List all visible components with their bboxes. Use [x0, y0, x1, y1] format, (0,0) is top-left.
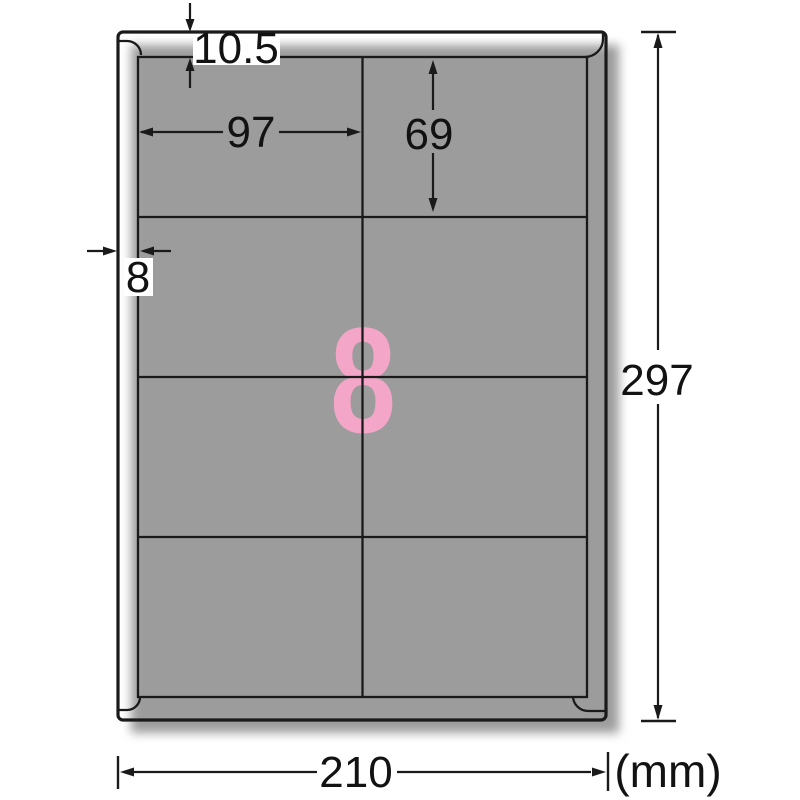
sheet-height-value: 297: [620, 356, 693, 405]
sheet-width-value: 210: [319, 748, 392, 797]
label-width-value: 97: [227, 108, 276, 157]
top-margin-value: 10.5: [193, 24, 279, 73]
dimension-sheet-width: 210: [118, 748, 608, 797]
arrowhead-right-icon: [103, 247, 117, 256]
label-height-value: 69: [405, 110, 454, 159]
label-sheet-dimension-diagram: 8 10.5 97 69: [0, 0, 800, 800]
arrowhead-left-icon: [120, 768, 134, 777]
side-margin-value: 8: [126, 253, 150, 302]
diagram-canvas: 8 10.5 97 69: [0, 0, 800, 800]
arrowhead-down-icon: [654, 705, 663, 720]
arrowhead-right-icon: [592, 768, 606, 777]
unit-label: (mm): [614, 745, 721, 797]
arrowhead-up-icon: [654, 33, 663, 48]
dimension-sheet-height: 297: [620, 32, 693, 721]
